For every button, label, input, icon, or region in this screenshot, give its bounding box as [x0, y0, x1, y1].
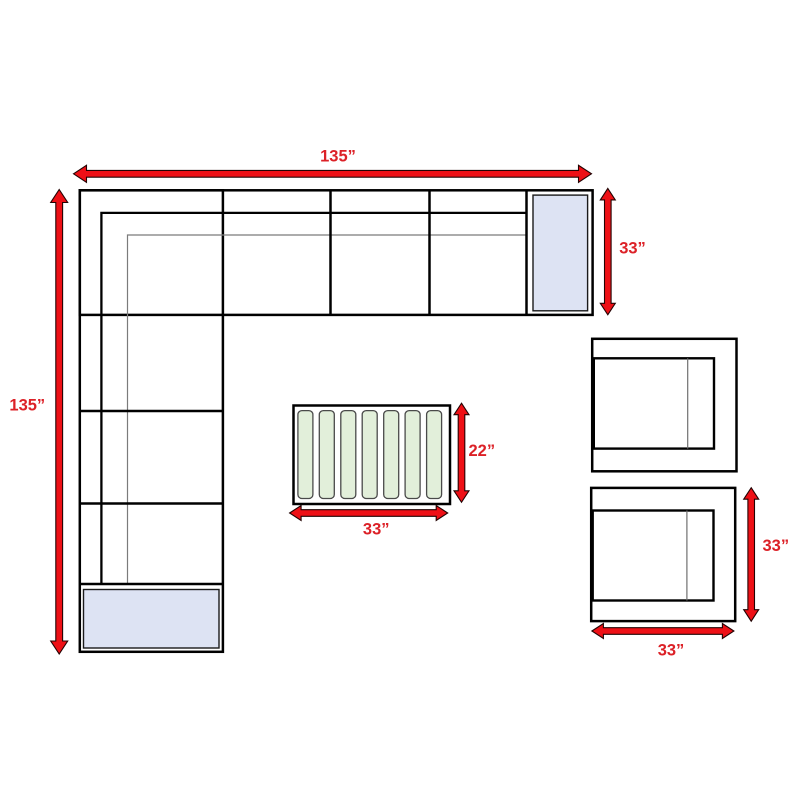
svg-text:33”: 33”	[363, 521, 390, 539]
svg-text:135”: 135”	[9, 397, 45, 415]
svg-text:22”: 22”	[469, 442, 496, 460]
svg-text:135”: 135”	[320, 148, 356, 166]
svg-text:33”: 33”	[763, 537, 790, 555]
svg-text:33”: 33”	[658, 641, 685, 659]
svg-text:33”: 33”	[619, 240, 646, 258]
